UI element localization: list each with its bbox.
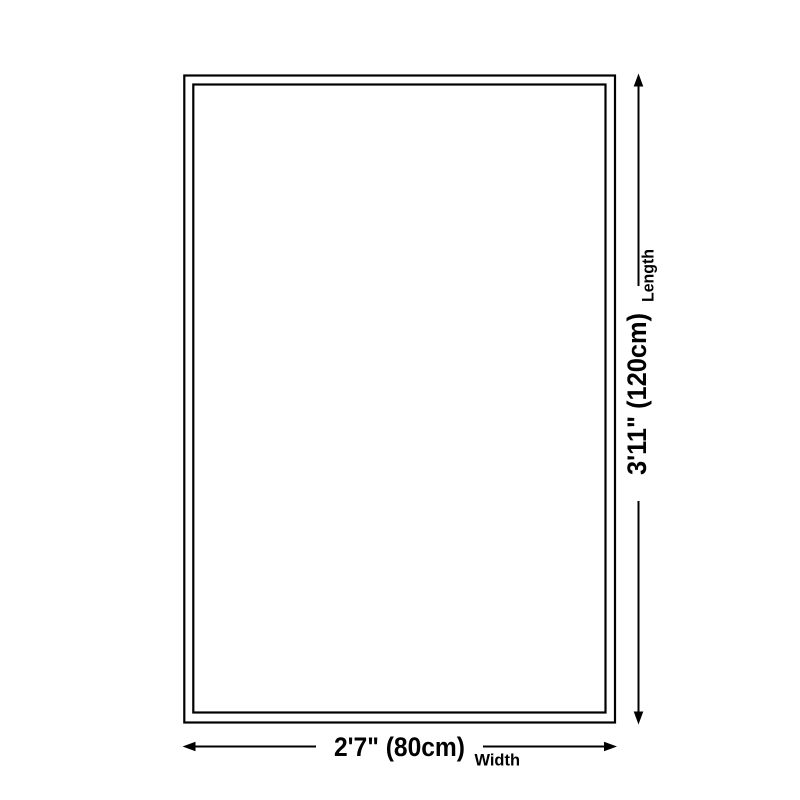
svg-text:2'7" (80cm): 2'7" (80cm) [334, 732, 465, 762]
svg-text:3'11" (120cm): 3'11" (120cm) [622, 313, 652, 475]
svg-text:Width: Width [475, 751, 521, 770]
svg-text:Length: Length [639, 249, 658, 302]
